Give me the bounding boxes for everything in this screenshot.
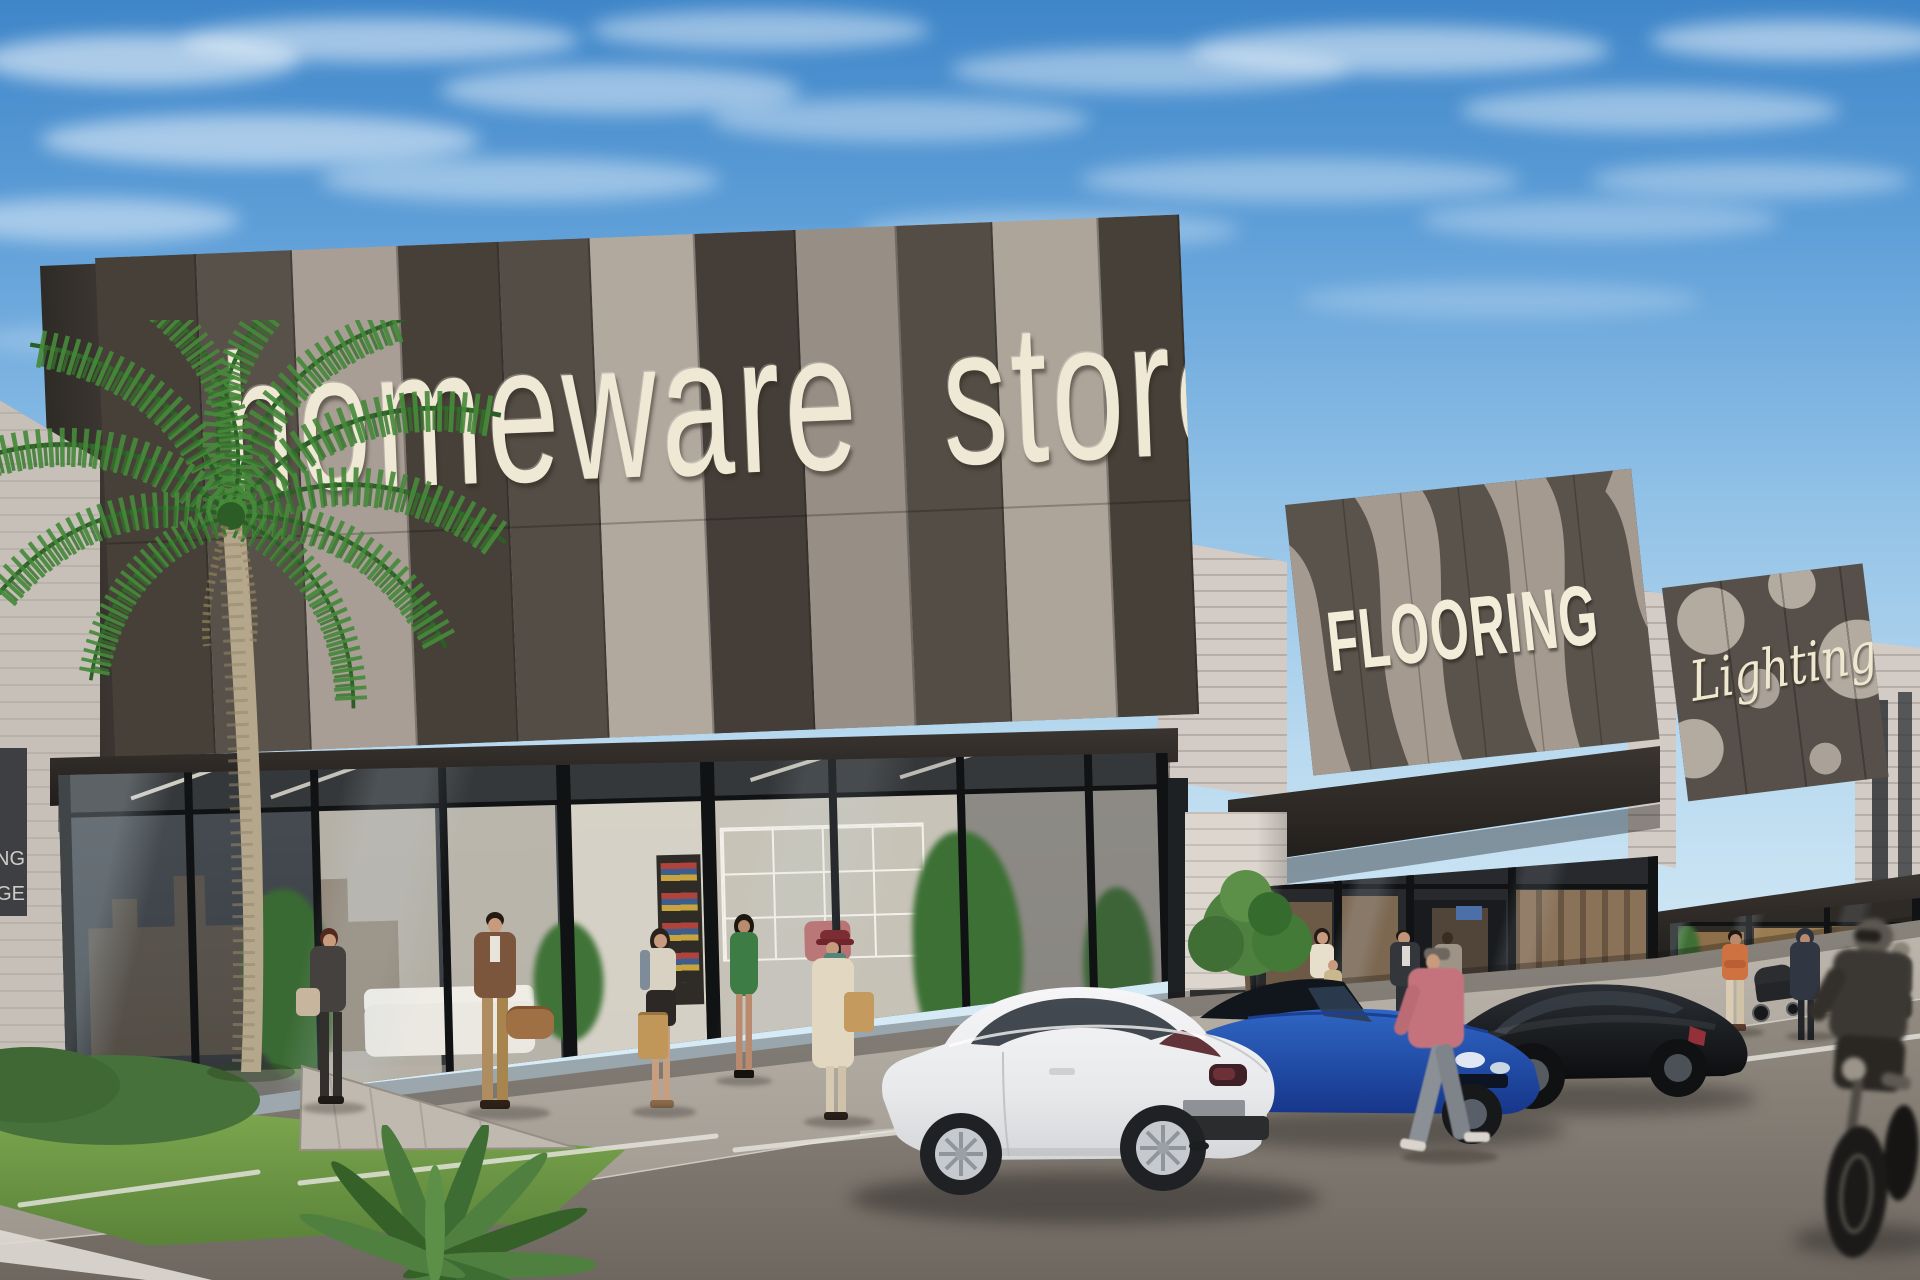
hoodie xyxy=(1408,968,1464,1048)
legs xyxy=(736,994,752,1072)
foreground-shrub xyxy=(275,1125,595,1280)
leg xyxy=(1434,1043,1472,1141)
door-handle xyxy=(1049,1068,1075,1075)
legs xyxy=(826,1066,846,1114)
head xyxy=(1442,932,1453,944)
wheel-rim xyxy=(1664,1054,1692,1082)
person-shadow xyxy=(632,1106,696,1118)
wheel-front xyxy=(920,1113,1002,1195)
taillight-inner xyxy=(1213,1068,1235,1080)
person-walker-pink-top xyxy=(1380,944,1510,1176)
person-woman-green-dress xyxy=(716,914,774,1090)
person-shadow xyxy=(716,1076,772,1086)
person-shadow xyxy=(1402,1150,1498,1164)
white-coupe xyxy=(853,960,1305,1212)
denim-jacket xyxy=(640,950,650,990)
person-shadow xyxy=(466,1106,550,1120)
rider-torso xyxy=(1828,948,1912,1045)
dress xyxy=(730,932,758,996)
person-woman-shopper xyxy=(628,928,700,1118)
visor xyxy=(1855,929,1882,943)
palm-crown xyxy=(0,320,510,710)
shopping-bag xyxy=(638,1012,668,1059)
shrub-leaves xyxy=(296,1125,595,1280)
head xyxy=(654,934,667,948)
palm-tree xyxy=(0,320,605,1090)
sneaker xyxy=(1464,1132,1490,1142)
exhaust-tip xyxy=(1189,1141,1209,1151)
person-shadow xyxy=(302,1102,366,1114)
scene: homeware store NG GE FLOORING Lighting xyxy=(0,0,1920,1280)
